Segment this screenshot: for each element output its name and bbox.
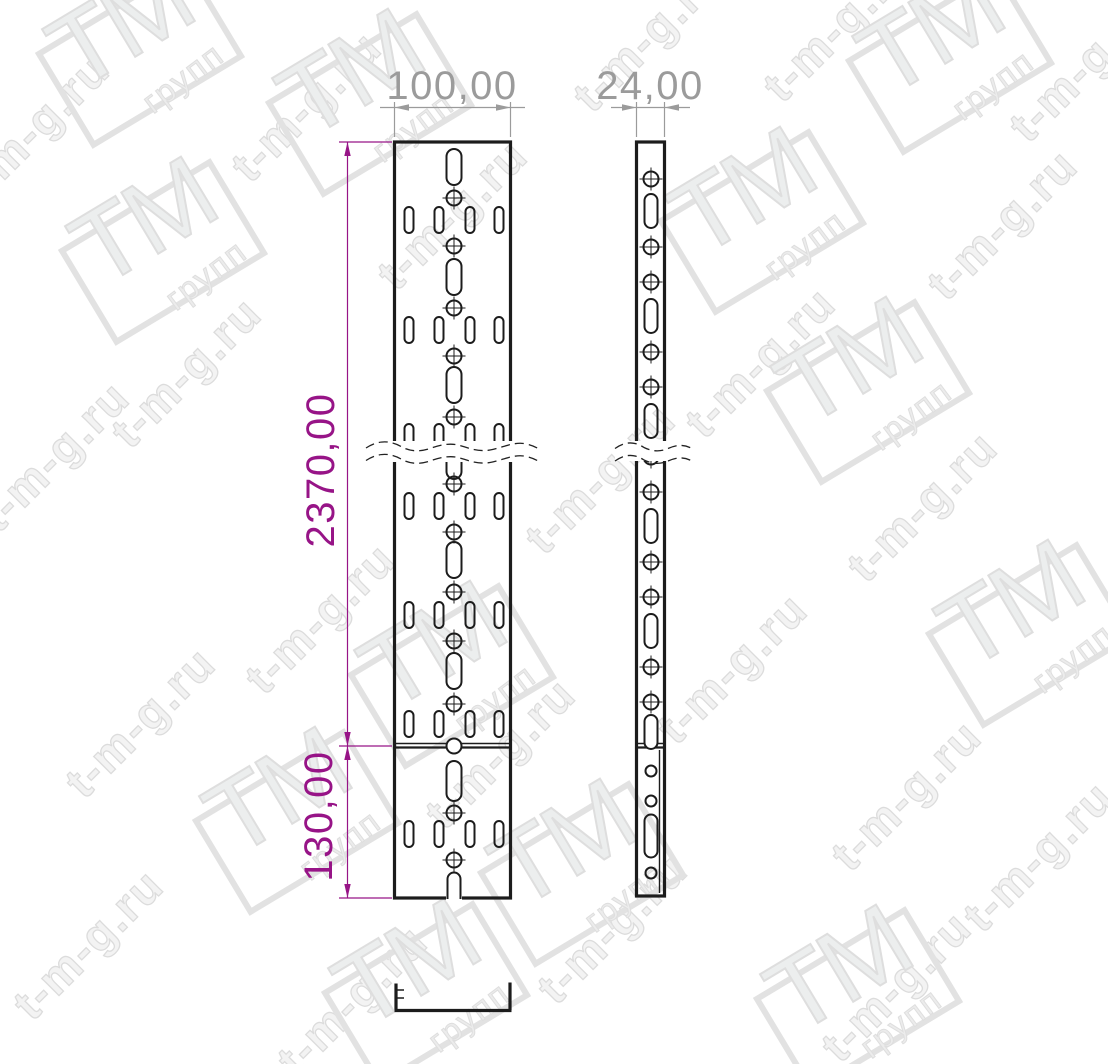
dimension-side-width: 24,00: [596, 64, 704, 137]
bottom-end-view: [395, 983, 512, 1011]
dim-side-width-label: 24,00: [596, 64, 704, 108]
break-line-side: [615, 441, 691, 463]
dimension-front-width: 100,00: [380, 64, 525, 137]
front-view-joint: [395, 739, 511, 754]
drawing-canvas: t-m-g.rut-m-g.rut-m-g.rut-m-g.rut-m-g.ru…: [0, 0, 1108, 1064]
dim-bottom-length-label: 130,00: [297, 750, 341, 881]
dimension-bottom-length: 130,00: [297, 746, 392, 898]
side-view-holes: [640, 168, 663, 714]
front-view-bottom-holes: [405, 761, 504, 902]
dim-front-width-label: 100,00: [386, 64, 517, 108]
side-view: [637, 142, 665, 896]
front-view: [395, 142, 511, 902]
dim-main-length-label: 2370,00: [299, 392, 343, 547]
break-line-front: [366, 441, 539, 463]
side-view-bottom-holes: [645, 766, 658, 879]
front-view-outline: [395, 142, 511, 898]
side-view-joint: [637, 715, 665, 893]
technical-drawing: 100,00 24,00 2370,00 130,00: [0, 0, 1108, 1064]
